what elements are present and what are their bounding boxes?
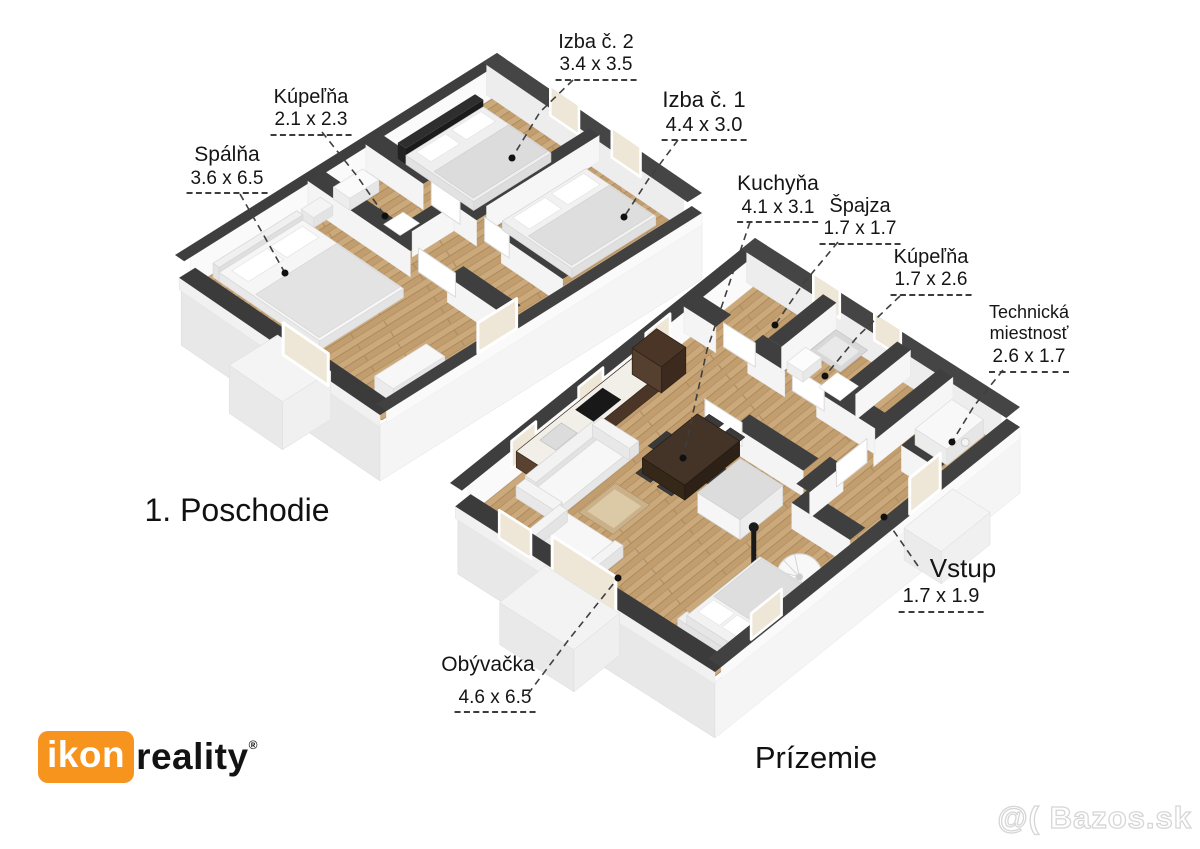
room-label-spajza: Špajza 1.7 x 1.7: [820, 195, 901, 245]
room-name: Izba č. 1: [662, 88, 747, 113]
room-label-izba-2: Izba č. 2 3.4 x 3.5: [556, 31, 637, 81]
room-dims: 1.7 x 1.7: [820, 218, 901, 244]
room-dims: 3.4 x 3.5: [556, 54, 637, 80]
room-name: Izba č. 2: [556, 31, 637, 53]
room-dims: 1.7 x 2.6: [891, 269, 972, 295]
registered-mark: ®: [249, 738, 258, 752]
bazos-watermark: @( Bazos.sk: [997, 800, 1192, 836]
room-name: Obývačka: [441, 653, 536, 677]
ikonreality-logo: ikon reality ®: [38, 731, 257, 783]
room-name: Kúpeľňa: [891, 246, 972, 268]
room-name: Technická miestnosť: [970, 302, 1088, 344]
room-dims: 4.1 x 3.1: [738, 197, 819, 223]
room-name: Spálňa: [187, 143, 268, 167]
room-name: Špajza: [820, 195, 901, 217]
room-label-kupelna-1: Kúpeľňa 2.1 x 2.3: [271, 86, 352, 136]
floor-title-poschodie: 1. Poschodie: [144, 492, 329, 529]
room-name: Kúpeľňa: [271, 86, 352, 108]
floor-title-prizemie: Prízemie: [755, 740, 877, 776]
room-label-kupelna-2: Kúpeľňa 1.7 x 2.6: [891, 246, 972, 296]
logo-suffix: reality: [136, 736, 249, 778]
room-dims: 4.4 x 3.0: [662, 114, 747, 141]
room-label-spalna: Spálňa 3.6 x 6.5: [187, 143, 268, 194]
room-dims: 4.6 x 6.5: [455, 687, 536, 713]
floorplan-image: 1. Poschodie Prízemie Spálňa 3.6 x 6.5 K…: [0, 0, 1200, 849]
room-label-izba-1: Izba č. 1 4.4 x 3.0: [662, 88, 747, 141]
room-dims: 2.1 x 2.3: [271, 109, 352, 135]
room-label-technicka: Technická miestnosť 2.6 x 1.7: [970, 302, 1088, 373]
logo-orange-box: ikon: [38, 731, 134, 783]
floorplan-canvas: [0, 0, 1200, 849]
room-dims: 2.6 x 1.7: [989, 346, 1070, 372]
room-name: Kuchyňa: [737, 172, 819, 196]
room-label-kuchyna: Kuchyňa 4.1 x 3.1: [737, 172, 819, 223]
room-label-obyvacka: Obývačka 4.6 x 6.5: [441, 653, 536, 713]
room-dims-vstup: 1.7 x 1.9: [899, 585, 984, 613]
room-label-vstup: Vstup: [930, 553, 997, 584]
room-dims: 3.6 x 6.5: [187, 168, 268, 194]
logo-prefix: ikon: [47, 734, 125, 775]
